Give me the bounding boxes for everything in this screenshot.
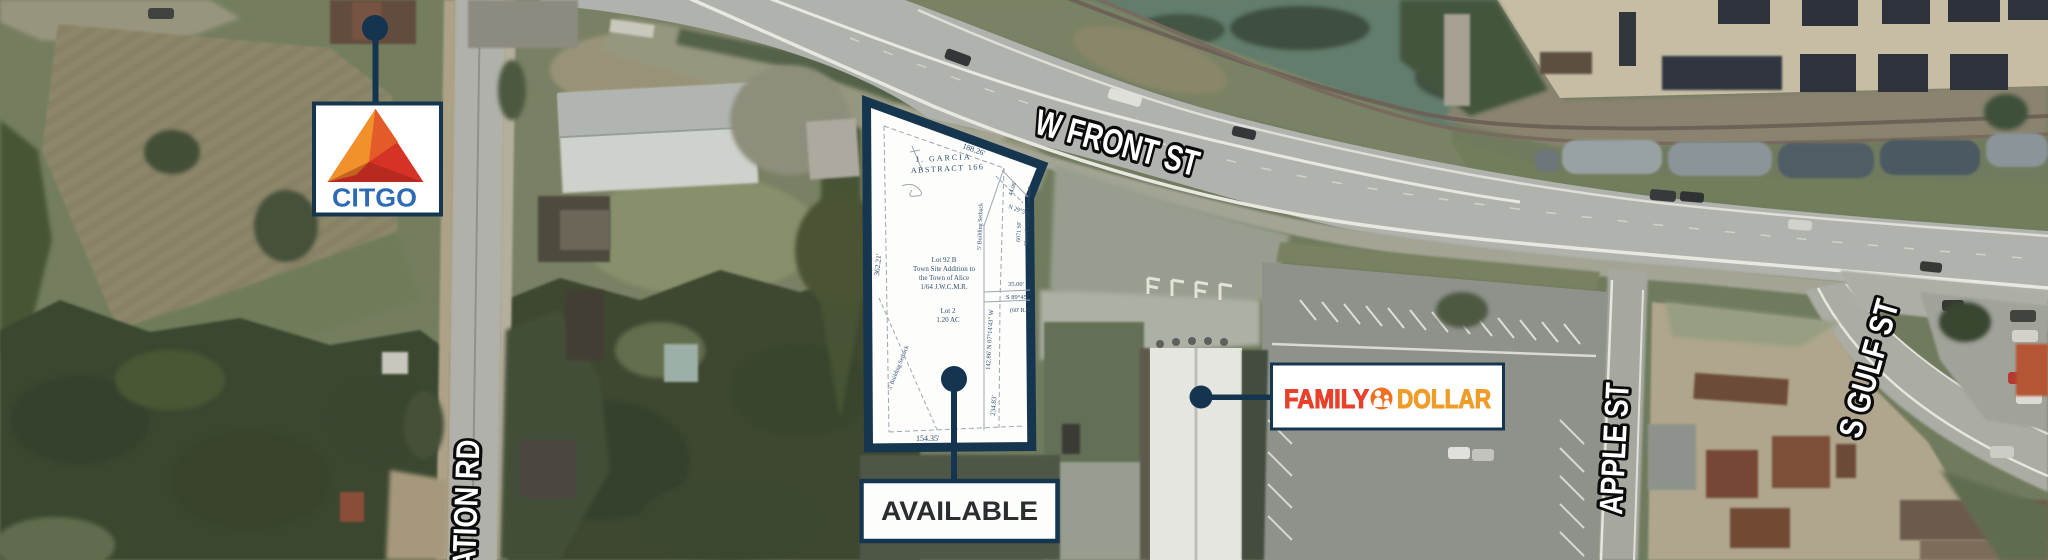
svg-text:AVAILABLE: AVAILABLE [881,496,1038,526]
svg-text:1/64 J.W.C.M.R.: 1/64 J.W.C.M.R. [920,283,967,291]
svg-text:S 89°45': S 89°45' [1006,294,1028,301]
svg-text:154.35': 154.35' [916,434,940,443]
svg-text:35.00': 35.00' [1008,281,1024,288]
svg-text:1.20 AC: 1.20 AC [936,316,960,324]
svg-text:DOLLAR: DOLLAR [1397,384,1491,414]
svg-text:APPLE ST: APPLE ST [1592,382,1636,516]
svg-text:6071 SF: 6071 SF [1016,221,1023,242]
svg-text:CITGO: CITGO [332,183,417,213]
svg-text:FAMILY: FAMILY [1284,384,1369,414]
svg-text:ATION RD: ATION RD [445,439,487,560]
svg-text:Lot 92 B: Lot 92 B [932,256,957,264]
svg-text:234.83': 234.83' [989,395,998,416]
svg-text:Town Site Addition to: Town Site Addition to [913,265,975,273]
svg-text:the Town of Alice: the Town of Alice [919,274,969,282]
svg-text:Lot 2: Lot 2 [941,307,956,315]
